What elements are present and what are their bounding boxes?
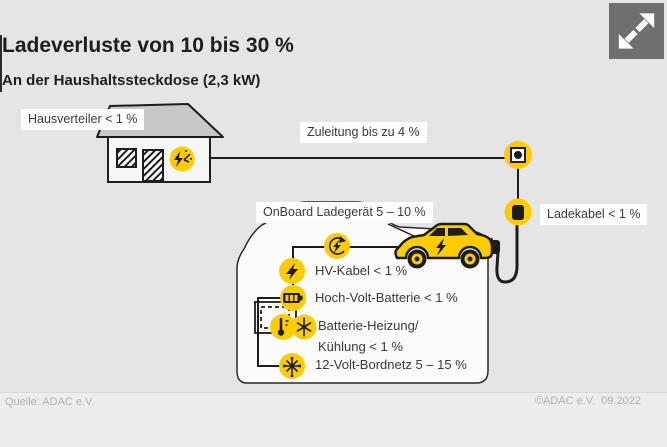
copyright-note: ©ADAC e.V. 09.2022 — [535, 395, 641, 407]
charging-plug-icon — [505, 199, 532, 226]
house-window — [117, 149, 136, 167]
car-rear-wheel — [461, 250, 480, 269]
onboard-charger-icon — [324, 233, 350, 259]
source-note: Quelle: ADAC e.V. — [5, 396, 94, 408]
car-front-wheel — [408, 250, 427, 269]
onboard-network-icon — [279, 353, 305, 379]
hv-cable-label: HV-Kabel < 1 % — [315, 263, 407, 278]
charging-cable-label: Ladekabel < 1 % — [540, 204, 647, 225]
wall-socket-icon — [504, 141, 532, 169]
expand-button[interactable] — [609, 3, 664, 59]
expand-arrows-icon — [609, 3, 664, 59]
high-volt-battery-label: Hoch-Volt-Batterie < 1 % — [315, 290, 458, 305]
battery-icon — [280, 285, 306, 311]
lightning-bolt-icon — [279, 258, 305, 284]
battery-heating-label-line1: Batterie-Heizung/ — [318, 318, 418, 333]
footer: Quelle: ADAC e.V. ©ADAC e.V. 09.2022 — [0, 392, 667, 447]
electric-meter-icon — [170, 147, 195, 172]
house-door — [143, 150, 163, 181]
supply-line-label: Zuleitung bis zu 4 % — [300, 122, 427, 143]
onboard-network-label: 12-Volt-Bordnetz 5 – 15 % — [315, 357, 467, 372]
infographic-canvas: Ladeverluste von 10 bis 30 % An der Haus… — [0, 0, 667, 447]
cooling-snowflake-icon — [292, 315, 317, 340]
house-distributor-label: Hausverteiler < 1 % — [21, 109, 144, 130]
onboard-charger-label: OnBoard Ladegerät 5 – 10 % — [256, 202, 433, 223]
battery-heating-label-line2: Kühlung < 1 % — [318, 339, 403, 354]
